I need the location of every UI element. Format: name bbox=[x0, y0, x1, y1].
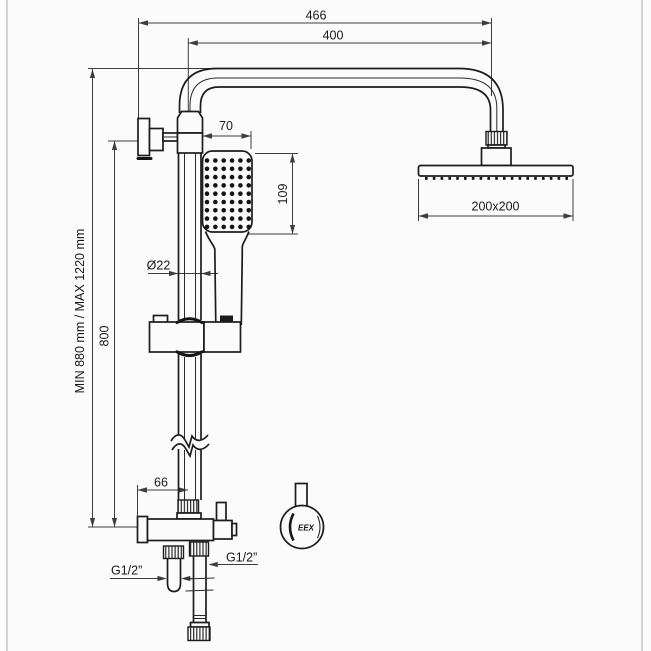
dimension-200x200: 200x200 bbox=[419, 179, 574, 221]
logo-text: EEX bbox=[298, 524, 315, 533]
dimension-466: 466 bbox=[139, 9, 492, 119]
dim-label-70: 70 bbox=[219, 119, 233, 133]
dim-label-800: 800 bbox=[98, 326, 112, 347]
hand-shower-handle bbox=[206, 232, 250, 326]
thread-label-left: G1/2” bbox=[111, 564, 142, 578]
hand-shower bbox=[203, 151, 253, 232]
outlet-left bbox=[164, 546, 184, 592]
dim-label-466: 466 bbox=[306, 9, 327, 23]
wall-bracket bbox=[138, 119, 178, 159]
rain-head-connector bbox=[482, 132, 512, 166]
dimension-pipe-diameter: Ø22 bbox=[147, 259, 218, 277]
dimension-70: 70 bbox=[203, 119, 252, 149]
thread-label-right: G1/2” bbox=[226, 551, 257, 565]
dim-label-d22: Ø22 bbox=[147, 259, 171, 273]
dim-label-400: 400 bbox=[323, 29, 344, 43]
diverter-stub bbox=[217, 503, 227, 521]
riser-mixer-nut bbox=[177, 500, 201, 519]
rain-head bbox=[419, 166, 574, 180]
slider-bracket bbox=[150, 316, 241, 356]
dimension-109: 109 bbox=[247, 154, 298, 235]
riser-pipe-upper bbox=[179, 153, 202, 320]
dimension-800: 800 bbox=[98, 141, 139, 527]
shower-column-drawing: 466 400 MIN 880 mm / MAX 1220 mm 800 70 bbox=[0, 0, 651, 651]
logo-badge: EEX bbox=[281, 484, 324, 549]
outlet-right bbox=[185, 542, 215, 641]
drawing-page: 466 400 MIN 880 mm / MAX 1220 mm 800 70 bbox=[0, 0, 651, 651]
dim-label-200x200: 200x200 bbox=[472, 200, 520, 214]
thread-callout-right: G1/2” bbox=[209, 551, 259, 568]
riser-pipe-lower bbox=[171, 354, 209, 500]
dim-label-109: 109 bbox=[276, 184, 290, 205]
dim-label-min-max: MIN 880 mm / MAX 1220 mm bbox=[73, 229, 87, 394]
page-border bbox=[7, 0, 642, 651]
dimension-400: 400 bbox=[188, 29, 491, 113]
dim-label-66: 66 bbox=[154, 476, 168, 490]
rain-head-nozzles bbox=[425, 177, 568, 180]
arm-nut bbox=[486, 132, 507, 146]
riser-tee-connector bbox=[178, 112, 203, 154]
